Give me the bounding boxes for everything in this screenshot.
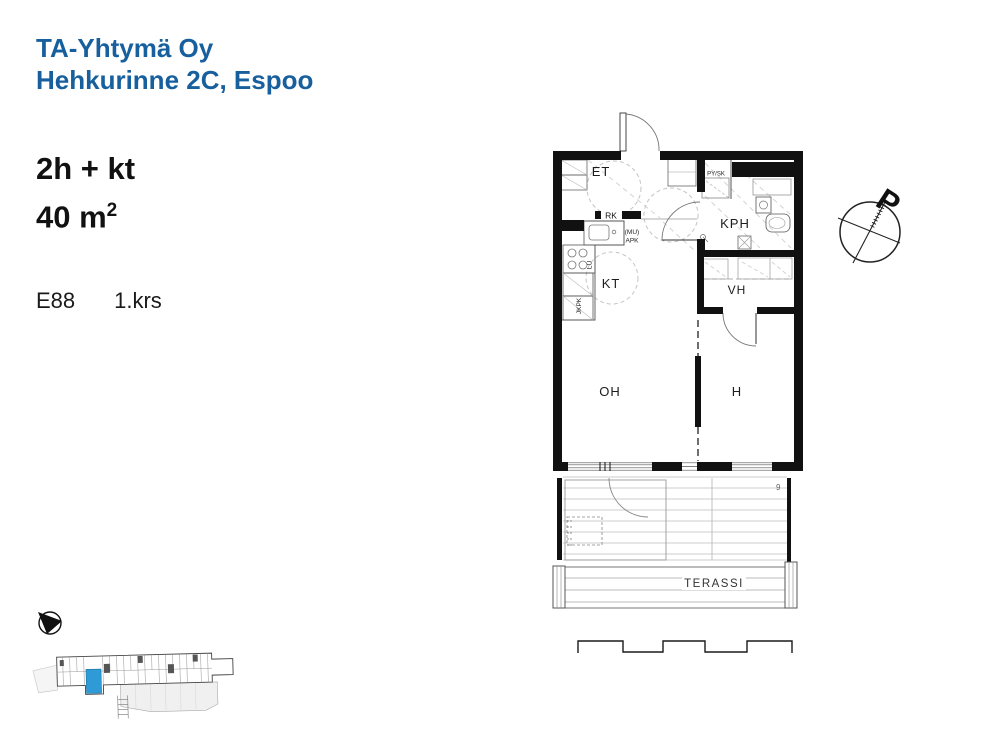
- fixture-label-pysk: PY/SK: [707, 172, 725, 178]
- terrace-door-swing: [609, 478, 648, 517]
- bath-door-swing: [662, 202, 700, 240]
- closet-door-swing: [723, 313, 756, 346]
- terrace-decking-lines: [563, 477, 787, 560]
- bath-cabinet: [753, 179, 791, 195]
- rk-label: RK: [605, 211, 617, 221]
- fixture-label-lu: LU: [587, 261, 594, 270]
- apartment-layout: 2h + kt: [36, 148, 135, 190]
- header-block: TA-Yhtymä Oy Hehkurinne 2C, Espoo: [36, 32, 313, 96]
- property-address: Hehkurinne 2C, Espoo: [36, 64, 313, 96]
- entrance-door-leaf: [620, 113, 626, 151]
- site-lower-wing: [120, 682, 218, 713]
- terrace-deck-edge: [565, 480, 666, 560]
- washbasin: [766, 214, 790, 232]
- toilet: [756, 197, 771, 213]
- sink-basin: [589, 225, 609, 240]
- site-plan: [20, 600, 280, 735]
- section-marker-line: [578, 641, 792, 653]
- compass: P: [838, 182, 907, 263]
- terrace-label: TERASSI: [684, 578, 744, 590]
- terrace-left-post: [557, 478, 562, 560]
- walls: [553, 151, 803, 471]
- room-label-h: H: [732, 384, 742, 399]
- entrance-door-swing: [626, 114, 659, 151]
- unit-row: E88 1.krs: [36, 288, 162, 314]
- site-building: [33, 653, 235, 721]
- unit-id: E88: [36, 288, 108, 314]
- vh-diagonals: [705, 262, 790, 277]
- sink-faucet: [612, 230, 616, 234]
- terrace-railing: [553, 562, 797, 608]
- company-name: TA-Yhtymä Oy: [36, 32, 313, 64]
- terrace: TERASSI 9: [553, 477, 797, 608]
- fixture-label-apk: APK: [625, 238, 639, 245]
- floor-plan-drawing: TERASSI 9: [530, 95, 990, 680]
- drain-mark: 9: [776, 483, 781, 492]
- room-label-vh: VH: [728, 283, 747, 297]
- fixture-label-jkpk: JKPK: [576, 297, 583, 314]
- highlighted-unit: [86, 669, 102, 693]
- room-label-oh: OH: [599, 384, 621, 399]
- stove-burners: [568, 249, 587, 269]
- terrace-dots: [567, 520, 571, 545]
- terrace-right-post: [787, 478, 791, 562]
- area-superscript: 2: [107, 200, 118, 221]
- apartment-spec: 2h + kt 40 m2: [36, 148, 135, 238]
- site-north-indicator: [38, 612, 62, 634]
- room-label-kph: KPH: [720, 216, 750, 231]
- compass-cross-line: [838, 218, 900, 243]
- room-label-et: ET: [592, 164, 611, 179]
- room-labels: ET KPH KT VH OH H: [592, 164, 750, 399]
- balcony-door-mullions: [600, 462, 610, 471]
- floor-number: 1.krs: [114, 288, 162, 313]
- entry-closets: [561, 159, 696, 190]
- apartment-area: 40 m2: [36, 190, 135, 238]
- floor-plan-page: TA-Yhtymä Oy Hehkurinne 2C, Espoo 2h + k…: [0, 0, 1000, 750]
- room-label-kt: KT: [602, 276, 621, 291]
- fixture-label-mu: (MU): [625, 229, 639, 236]
